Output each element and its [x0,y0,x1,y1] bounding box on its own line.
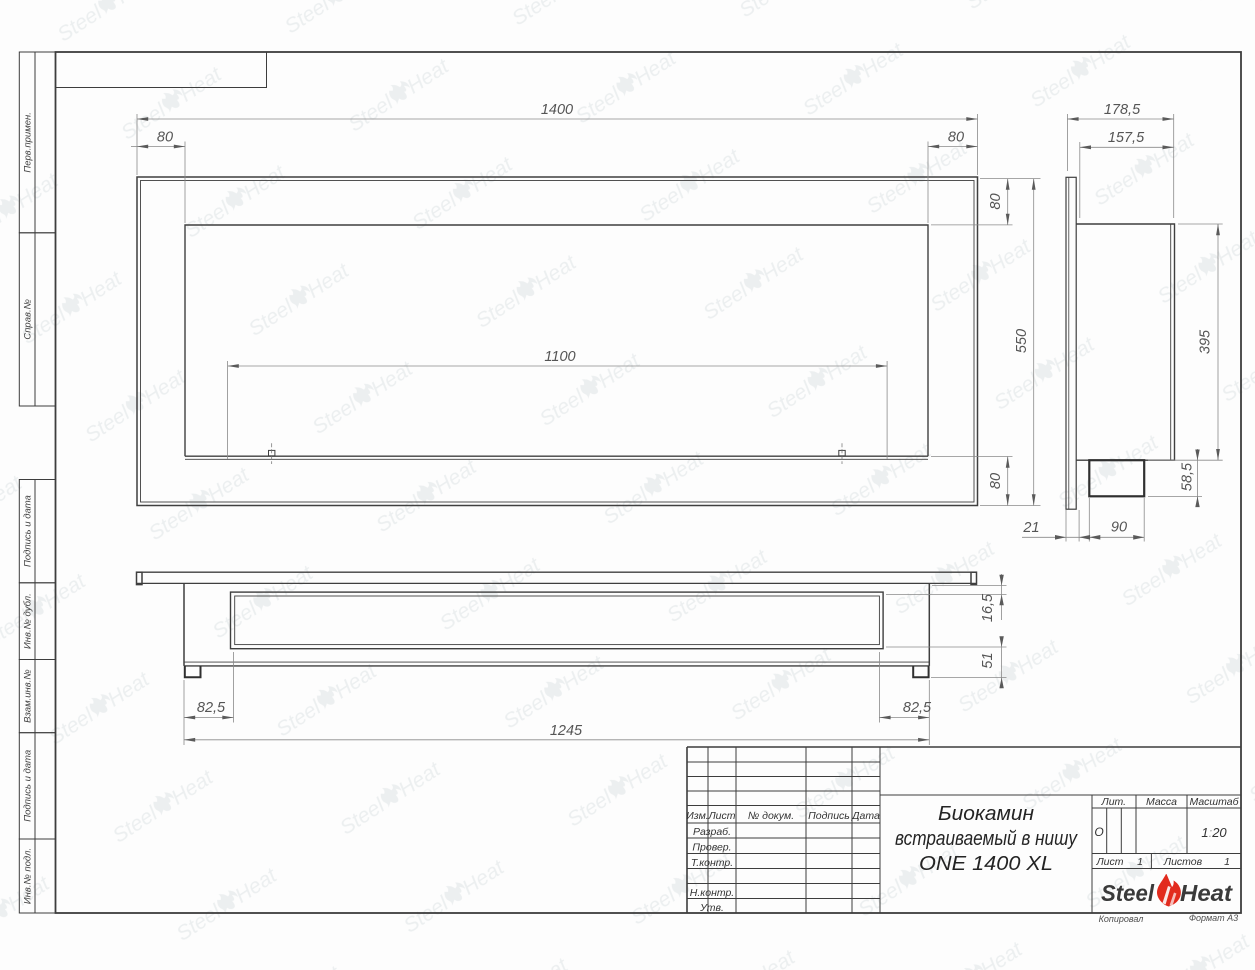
svg-text:16,5: 16,5 [980,593,996,622]
svg-text:82,5: 82,5 [197,700,226,716]
svg-text:Изм.: Изм. [686,810,708,822]
svg-text:Дата: Дата [851,810,880,822]
svg-text:178,5: 178,5 [1104,102,1141,118]
svg-text:157,5: 157,5 [1108,130,1145,146]
svg-text:1:20: 1:20 [1201,825,1227,840]
svg-text:395: 395 [1198,329,1214,354]
svg-text:Провер.: Провер. [692,842,731,854]
svg-text:Лист: Лист [1095,856,1123,868]
svg-text:Копировал: Копировал [1099,914,1144,924]
svg-text:1: 1 [1137,856,1143,868]
svg-text:1245: 1245 [550,723,583,739]
svg-text:90: 90 [1111,520,1127,536]
svg-text:О: О [1094,825,1103,839]
svg-text:Подпись: Подпись [808,810,850,822]
svg-text:Н.контр.: Н.контр. [690,887,734,899]
svg-text:Листов: Листов [1163,856,1203,868]
svg-text:Т.контр.: Т.контр. [691,857,733,869]
svg-text:Инв.№ подл.: Инв.№ подл. [23,848,34,904]
svg-text:21: 21 [1022,520,1039,536]
svg-text:Масштаб: Масштаб [1189,796,1239,808]
svg-text:Heat: Heat [1180,880,1233,906]
svg-text:80: 80 [988,193,1004,209]
svg-text:встраиваемый в нишу: встраиваемый в нишу [895,827,1078,850]
svg-text:Подпись и дата: Подпись и дата [23,495,34,567]
svg-text:№ докум.: № докум. [748,810,794,822]
svg-text:Справ.№: Справ.№ [23,299,34,340]
svg-text:Лист: Лист [707,810,735,822]
svg-text:Формат A3: Формат A3 [1189,913,1238,923]
svg-text:82,5: 82,5 [903,700,932,716]
svg-text:58,5: 58,5 [1180,462,1196,491]
svg-text:Лит.: Лит. [1101,796,1127,808]
svg-text:Биокамин: Биокамин [938,802,1034,825]
svg-text:550: 550 [1014,329,1030,353]
svg-text:ONE 1400 XL: ONE 1400 XL [919,852,1053,875]
svg-text:80: 80 [948,130,964,146]
svg-text:Разраб.: Разраб. [693,826,731,838]
svg-text:Инв.№ дубл.: Инв.№ дубл. [23,593,34,649]
svg-text:Steel: Steel [1101,880,1155,906]
svg-text:1400: 1400 [541,102,573,118]
svg-text:51: 51 [980,652,996,668]
svg-text:1: 1 [1224,856,1230,868]
svg-text:1100: 1100 [544,349,575,365]
svg-text:Утв.: Утв. [699,902,724,914]
svg-text:80: 80 [988,473,1004,489]
svg-text:Подпись и дата: Подпись и дата [23,750,34,822]
svg-text:Масса: Масса [1146,796,1177,808]
svg-text:80: 80 [157,130,173,146]
svg-text:Взам.инв.№: Взам.инв.№ [23,669,34,722]
svg-text:Перв.примен.: Перв.примен. [23,112,34,173]
